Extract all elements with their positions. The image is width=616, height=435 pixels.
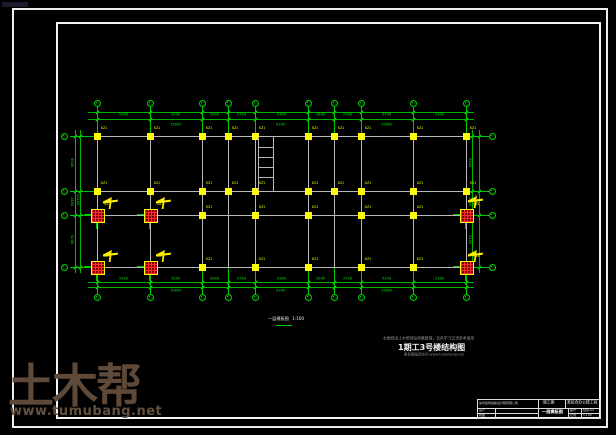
caption-line2: 1期工3号楼结构图 [398,344,465,352]
axis-bubble [252,100,259,107]
axis-bubble [331,294,338,301]
axis-bubble [489,133,496,140]
dimension-text: 13100 [76,194,80,205]
dimension-text: 15800 [381,123,392,127]
title-block-meta-value: 1:100 [583,414,592,417]
stair-line [273,137,274,191]
column-label: KZ1 [312,127,318,130]
column-label: KZ1 [417,206,423,209]
grid-line-vertical [97,136,98,267]
dimension-text: 5200 [171,277,180,281]
caption-line3: 更多图纸请访问 www.tumubang.net [404,353,464,357]
rebar-tick [137,266,144,267]
dimension-text: 2700 [237,277,246,281]
axis-bubble [147,294,154,301]
column-marker [199,212,206,219]
column-label: KZ1 [417,182,423,185]
dimension-text: 5500 [468,158,472,167]
title-block-meta-value: 结施-03 [583,409,594,412]
column-label: KZ1 [470,127,476,130]
stair-rung [258,147,273,148]
grid-line-vertical [255,136,256,267]
axis-bubble [61,133,68,140]
stair-rung [258,177,273,178]
column-label: KZ1 [259,182,265,185]
dimension-text: 5300 [277,113,286,117]
column-marker [225,133,232,140]
column-marker [94,188,101,195]
rebar-tick [465,223,466,229]
column-label: KZ1 [338,127,344,130]
title-block-line [538,399,539,408]
column-label: KZ1 [154,182,160,185]
column-marker [410,264,417,271]
dimension-text: 15800 [381,289,392,293]
column-marker [305,188,312,195]
column-label: KZ1 [232,182,238,185]
axis-bubble [252,294,259,301]
column-label: KZ1 [206,206,212,209]
dimension-line [88,282,474,283]
dimension-line [88,119,474,120]
dimension-text: 5300 [119,277,128,281]
column-label: KZ1 [101,182,107,185]
rebar-tick [84,214,91,215]
section-flag [103,197,118,209]
column-marker [305,133,312,140]
axis-bubble [331,100,338,107]
axis-bubble [94,100,101,107]
column-label: KZ1 [470,182,476,185]
dimension-text: 2400 [70,197,74,206]
column-marker [463,188,470,195]
rebar-tick [137,214,144,215]
column-label: KZ1 [365,258,371,261]
column-label: KZ1 [154,127,160,130]
axis-bubble [199,294,206,301]
column-label: KZ1 [312,206,318,209]
rebar-tick [149,275,150,281]
dimension-text: 5300 [277,277,286,281]
axis-bubble [61,264,68,271]
title-block-meta-label: 图号 [570,409,576,412]
axis-bubble [489,264,496,271]
column-marker [358,188,365,195]
stair-rung [258,157,273,158]
column-marker [410,212,417,219]
column-section-marker [144,209,158,223]
column-label: KZ1 [312,182,318,185]
dimension-text: 2600 [210,113,219,117]
dimension-text: 2600 [210,277,219,281]
column-marker [147,133,154,140]
grid-line-vertical [228,136,229,267]
watermark-site: www.tumubang.net [10,405,162,418]
grid-line-vertical [308,136,309,267]
dimension-text: 5300 [276,123,285,127]
column-section-marker [91,209,105,223]
column-marker [331,188,338,195]
dimension-text: 5200 [382,113,391,117]
title-block-line [565,399,566,408]
rebar-tick [149,223,150,229]
dimension-text: 2700 [343,113,352,117]
axis-bubble [225,294,232,301]
plan-title-text: 一层模板图 [268,317,289,321]
plan-title-underline [276,325,292,326]
column-label: KZ1 [259,258,265,261]
axis-bubble [61,188,68,195]
axis-bubble [358,100,365,107]
section-flag [156,250,171,262]
column-marker [252,264,259,271]
section-flag [103,250,118,262]
title-block-stage: 施工图 [543,401,554,405]
dimension-line [80,130,81,273]
dimension-text: 5300 [435,277,444,281]
rebar-tick [84,266,91,267]
dimension-text: 2600 [316,277,325,281]
column-marker [410,133,417,140]
column-label: KZ1 [365,127,371,130]
section-flag [156,197,171,209]
dimension-text: 2700 [343,277,352,281]
column-label: KZ1 [206,127,212,130]
dimension-text: 2700 [237,113,246,117]
title-block-company: 某市建筑勘察设计院有限公司 [479,402,518,405]
column-marker [305,264,312,271]
axis-bubble [489,212,496,219]
column-label: KZ1 [232,127,238,130]
column-section-marker [144,261,158,275]
axis-bubble [94,294,101,301]
column-marker [331,133,338,140]
column-marker [252,212,259,219]
cad-sheet: 5300520026002700530026002700520053001580… [0,0,616,435]
column-label: KZ1 [312,258,318,261]
axis-bubble [305,100,312,107]
rebar-tick [453,266,460,267]
grid-line-vertical [413,136,414,267]
axis-bubble [410,100,417,107]
dimension-text: 5500 [70,158,74,167]
dimension-text: 5200 [171,113,180,117]
column-label: KZ1 [101,127,107,130]
title-block-meta-label: 比例 [570,414,576,417]
column-section-marker [460,209,474,223]
column-label: KZ1 [206,258,212,261]
plan-title-scale: 1:100 [292,317,304,321]
column-section-marker [91,261,105,275]
dimension-text: 15800 [170,289,181,293]
grid-line-vertical [150,136,151,267]
column-marker [199,188,206,195]
title-block-row-label: 制图 [479,414,485,417]
column-marker [410,188,417,195]
dimension-line [479,130,480,273]
column-label: KZ1 [365,206,371,209]
column-label: KZ1 [417,127,423,130]
column-marker [463,133,470,140]
axis-bubble [463,100,470,107]
column-marker [199,133,206,140]
axis-bubble [61,212,68,219]
dimension-text: 5200 [382,277,391,281]
axis-bubble [463,294,470,301]
rebar-tick [465,275,466,281]
title-block-project: 某综合办公楼工程 [567,401,597,405]
watermark-logo: 土木帮 [8,363,140,409]
column-marker [225,188,232,195]
title-block-row-label: 设计 [479,409,485,412]
column-label: KZ1 [206,182,212,185]
dimension-text: 5200 [468,235,472,244]
title-block-line [477,413,538,414]
grid-line-vertical [466,136,467,267]
axis-bubble [305,294,312,301]
column-marker [358,212,365,219]
dimension-text: 15800 [170,123,181,127]
dimension-text: 5200 [70,235,74,244]
axis-bubble [225,100,232,107]
axis-bubble [489,188,496,195]
column-marker [94,133,101,140]
column-marker [358,133,365,140]
stair-rung [258,167,273,168]
column-section-marker [460,261,474,275]
rebar-tick [453,214,460,215]
grid-line-vertical [361,136,362,267]
dimension-text: 5300 [276,289,285,293]
axis-bubble [199,100,206,107]
column-marker [358,264,365,271]
grid-line-vertical [334,136,335,267]
column-label: KZ1 [259,206,265,209]
dimension-text: 5300 [119,113,128,117]
caption-line1: 本图纸由土木帮网站收集整理，仅供学习交流参考使用 [383,337,474,341]
title-block-drawing-name: 一层模板图 [542,410,563,414]
axis-bubble [410,294,417,301]
column-label: GZ1 [473,203,480,206]
column-marker [199,264,206,271]
column-marker [147,188,154,195]
rebar-tick [96,223,97,229]
column-label: KZ1 [417,258,423,261]
title-block-line [538,408,539,418]
axis-bubble [147,100,154,107]
stair-line [258,137,259,191]
dimension-text: 2600 [316,113,325,117]
dimension-text: 5300 [435,113,444,117]
rebar-tick [96,275,97,281]
column-label: KZ1 [259,127,265,130]
column-marker [305,212,312,219]
column-label: KZ1 [338,182,344,185]
grid-line-vertical [202,136,203,267]
axis-bubble [358,294,365,301]
column-label: KZ1 [365,182,371,185]
